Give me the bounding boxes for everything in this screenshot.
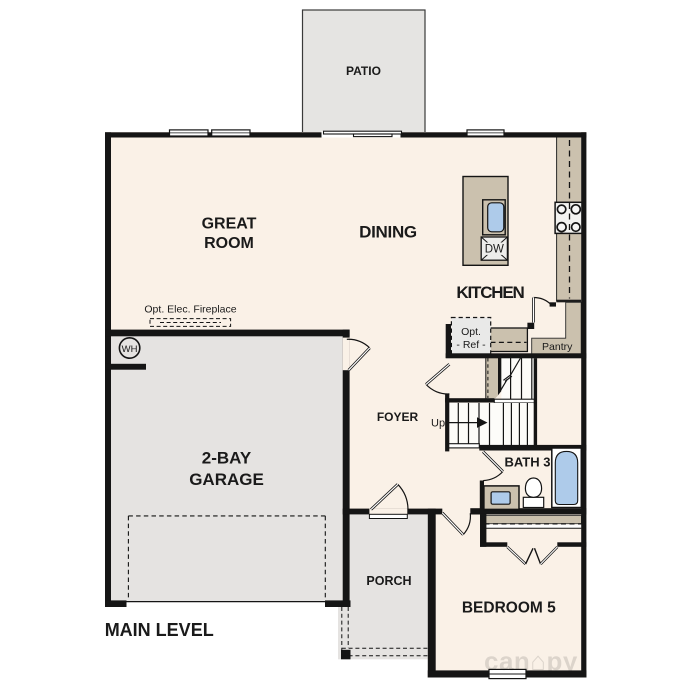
svg-text:2-BAY: 2-BAY [202, 449, 252, 468]
svg-text:Pantry: Pantry [542, 341, 573, 353]
svg-text:- Ref -: - Ref - [456, 339, 486, 351]
svg-text:BATH 3: BATH 3 [505, 455, 551, 470]
svg-text:MAIN LEVEL: MAIN LEVEL [105, 620, 214, 640]
svg-text:Opt. Elec. Fireplace: Opt. Elec. Fireplace [144, 304, 236, 316]
svg-text:Up: Up [431, 418, 445, 430]
svg-text:can⌂py: can⌂py [484, 646, 578, 676]
svg-text:PORCH: PORCH [366, 574, 411, 588]
svg-text:WH: WH [122, 344, 138, 355]
svg-text:ROOM: ROOM [204, 235, 254, 252]
svg-text:DINING: DINING [359, 223, 417, 242]
svg-text:FOYER: FOYER [377, 410, 419, 424]
svg-text:KITCHEN: KITCHEN [456, 283, 524, 302]
svg-text:GARAGE: GARAGE [189, 470, 264, 489]
svg-text:BEDROOM 5: BEDROOM 5 [462, 600, 556, 617]
svg-text:Opt.: Opt. [461, 326, 481, 338]
svg-text:GREAT: GREAT [202, 216, 257, 233]
svg-text:PATIO: PATIO [346, 64, 381, 78]
svg-text:DW: DW [485, 243, 504, 255]
